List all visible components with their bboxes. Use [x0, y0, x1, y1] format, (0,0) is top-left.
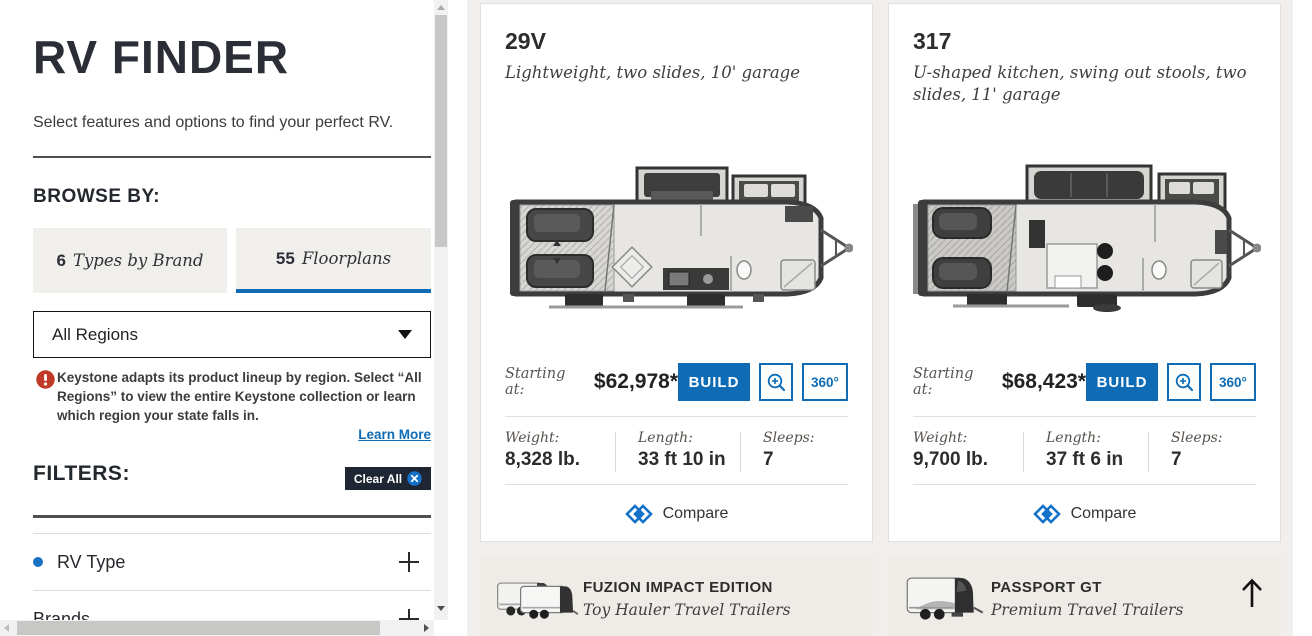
right-gutter	[1293, 0, 1312, 636]
rv-finder-sidebar: RV FINDER Select features and options to…	[0, 0, 448, 636]
starting-at-label: Starting at:	[505, 366, 587, 398]
sidebar-horizontal-scrollbar[interactable]	[0, 620, 434, 636]
floorplan-drawing-317	[909, 164, 1261, 314]
floorplan-image[interactable]	[501, 164, 853, 314]
spec-label: Weight:	[913, 430, 988, 446]
spec-label: Sleeps:	[1171, 430, 1223, 446]
region-select-value: All Regions	[52, 325, 138, 345]
clear-all-label: Clear All	[354, 472, 402, 486]
divider	[740, 432, 741, 472]
spec-row: Weight: 9,700 lb. Length: 37 ft 6 in Sle…	[913, 428, 1256, 476]
compare-button[interactable]: Compare	[481, 496, 872, 532]
chevron-down-icon	[398, 330, 412, 339]
spec-label: Weight:	[505, 430, 580, 446]
tab-count: 55	[276, 249, 295, 269]
clear-all-button[interactable]: Clear All	[345, 467, 431, 490]
spec-value: 7	[1171, 449, 1223, 471]
spec-value: 9,700 lb.	[913, 449, 988, 471]
view-360-button[interactable]: 360°	[1210, 363, 1256, 401]
arrow-up-icon	[1239, 577, 1265, 609]
spec-label: Length:	[638, 430, 726, 446]
filters-heading: FILTERS:	[33, 462, 130, 486]
compare-label: Compare	[663, 505, 729, 523]
zoom-floorplan-button[interactable]	[1167, 363, 1201, 401]
region-select[interactable]: All Regions	[33, 311, 431, 358]
divider	[1023, 432, 1024, 472]
magnifier-plus-icon	[766, 372, 787, 393]
divider	[913, 416, 1256, 417]
compare-label: Compare	[1071, 505, 1137, 523]
sidebar-vertical-scrollbar[interactable]	[434, 0, 448, 620]
tab-count: 6	[56, 251, 65, 271]
horizontal-scroll-thumb[interactable]	[17, 621, 380, 635]
magnifier-plus-icon	[1174, 372, 1195, 393]
tab-floorplans[interactable]: 55 Floorplans	[236, 228, 431, 293]
promo-subtitle: Toy Hauler Travel Trailers	[583, 601, 791, 619]
divider	[615, 432, 616, 472]
trailer-thumbnail	[496, 569, 578, 625]
spec-row: Weight: 8,328 lb. Length: 33 ft 10 in Sl…	[505, 428, 848, 476]
divider	[33, 156, 431, 158]
compare-diamonds-icon	[625, 503, 653, 526]
starting-price: $62,978*	[594, 370, 678, 394]
divider	[505, 484, 848, 485]
promo-subtitle: Premium Travel Trailers	[991, 601, 1184, 619]
floorplan-image[interactable]	[909, 164, 1261, 314]
results-pane: 29V Lightweight, two slides, 10' garage	[467, 0, 1293, 636]
spec-length: Length: 37 ft 6 in	[1046, 430, 1123, 471]
model-description: Lightweight, two slides, 10' garage	[505, 62, 850, 84]
sidebar-scroll-pane[interactable]: RV FINDER Select features and options to…	[0, 0, 448, 636]
expand-plus-icon[interactable]	[399, 552, 419, 572]
spec-label: Length:	[1046, 430, 1123, 446]
trailer-thumbnail	[904, 569, 986, 625]
compare-button[interactable]: Compare	[889, 496, 1280, 532]
spec-sleeps: Sleeps: 7	[1171, 430, 1223, 471]
promo-passport-gt[interactable]: PASSPORT GT Premium Travel Trailers	[888, 557, 1281, 636]
vertical-scroll-thumb[interactable]	[435, 15, 447, 247]
divider	[1148, 432, 1149, 472]
rv-finder-page: RV FINDER Select features and options to…	[0, 0, 1312, 636]
spec-weight: Weight: 9,700 lb.	[913, 430, 988, 471]
build-button[interactable]: BUILD	[678, 363, 750, 401]
starting-at-label: Starting at:	[913, 366, 995, 398]
warning-icon	[36, 370, 55, 389]
spec-weight: Weight: 8,328 lb.	[505, 430, 580, 471]
promo-fuzion-impact[interactable]: FUZION IMPACT EDITION Toy Hauler Travel …	[480, 557, 873, 636]
floorplan-drawing-29v	[501, 164, 853, 314]
active-filter-dot-icon	[33, 557, 43, 567]
starting-price: $68,423*	[1002, 370, 1086, 394]
close-icon	[407, 471, 422, 486]
browse-by-heading: BROWSE BY:	[33, 186, 160, 208]
tab-label: Floorplans	[302, 249, 391, 268]
region-notice-text: Keystone adapts its product lineup by re…	[57, 368, 431, 425]
filter-group-rv-type[interactable]: RV Type	[33, 534, 431, 590]
divider	[913, 484, 1256, 485]
build-button[interactable]: BUILD	[1086, 363, 1158, 401]
spec-value: 7	[763, 449, 815, 471]
tab-label: Types by Brand	[73, 251, 204, 270]
model-description: U-shaped kitchen, swing out stools, two …	[913, 62, 1258, 107]
view-360-button[interactable]: 360°	[802, 363, 848, 401]
back-to-top-button[interactable]	[1239, 577, 1269, 611]
scroll-right-icon[interactable]	[424, 624, 429, 632]
page-title: RV FINDER	[33, 30, 289, 84]
intro-text: Select features and options to find your…	[33, 114, 425, 132]
model-name: 29V	[505, 28, 546, 55]
spec-sleeps: Sleeps: 7	[763, 430, 815, 471]
spec-value: 33 ft 10 in	[638, 449, 726, 471]
spec-length: Length: 33 ft 10 in	[638, 430, 726, 471]
scroll-up-icon[interactable]	[437, 5, 445, 10]
floorplan-card-317: 317 U-shaped kitchen, swing out stools, …	[888, 3, 1281, 542]
divider	[33, 515, 431, 518]
scroll-left-icon[interactable]	[4, 624, 9, 632]
promo-title: PASSPORT GT	[991, 579, 1102, 596]
compare-diamonds-icon	[1033, 503, 1061, 526]
spec-value: 8,328 lb.	[505, 449, 580, 471]
tab-types-by-brand[interactable]: 6 Types by Brand	[33, 228, 227, 293]
zoom-floorplan-button[interactable]	[759, 363, 793, 401]
scroll-down-icon[interactable]	[437, 606, 445, 611]
promo-title: FUZION IMPACT EDITION	[583, 579, 773, 596]
learn-more-link[interactable]: Learn More	[358, 427, 431, 442]
spec-label: Sleeps:	[763, 430, 815, 446]
model-name: 317	[913, 28, 951, 55]
spec-value: 37 ft 6 in	[1046, 449, 1123, 471]
floorplan-card-29v: 29V Lightweight, two slides, 10' garage	[480, 3, 873, 542]
filter-group-label: RV Type	[57, 552, 125, 573]
divider	[505, 416, 848, 417]
region-notice: Keystone adapts its product lineup by re…	[33, 368, 431, 425]
